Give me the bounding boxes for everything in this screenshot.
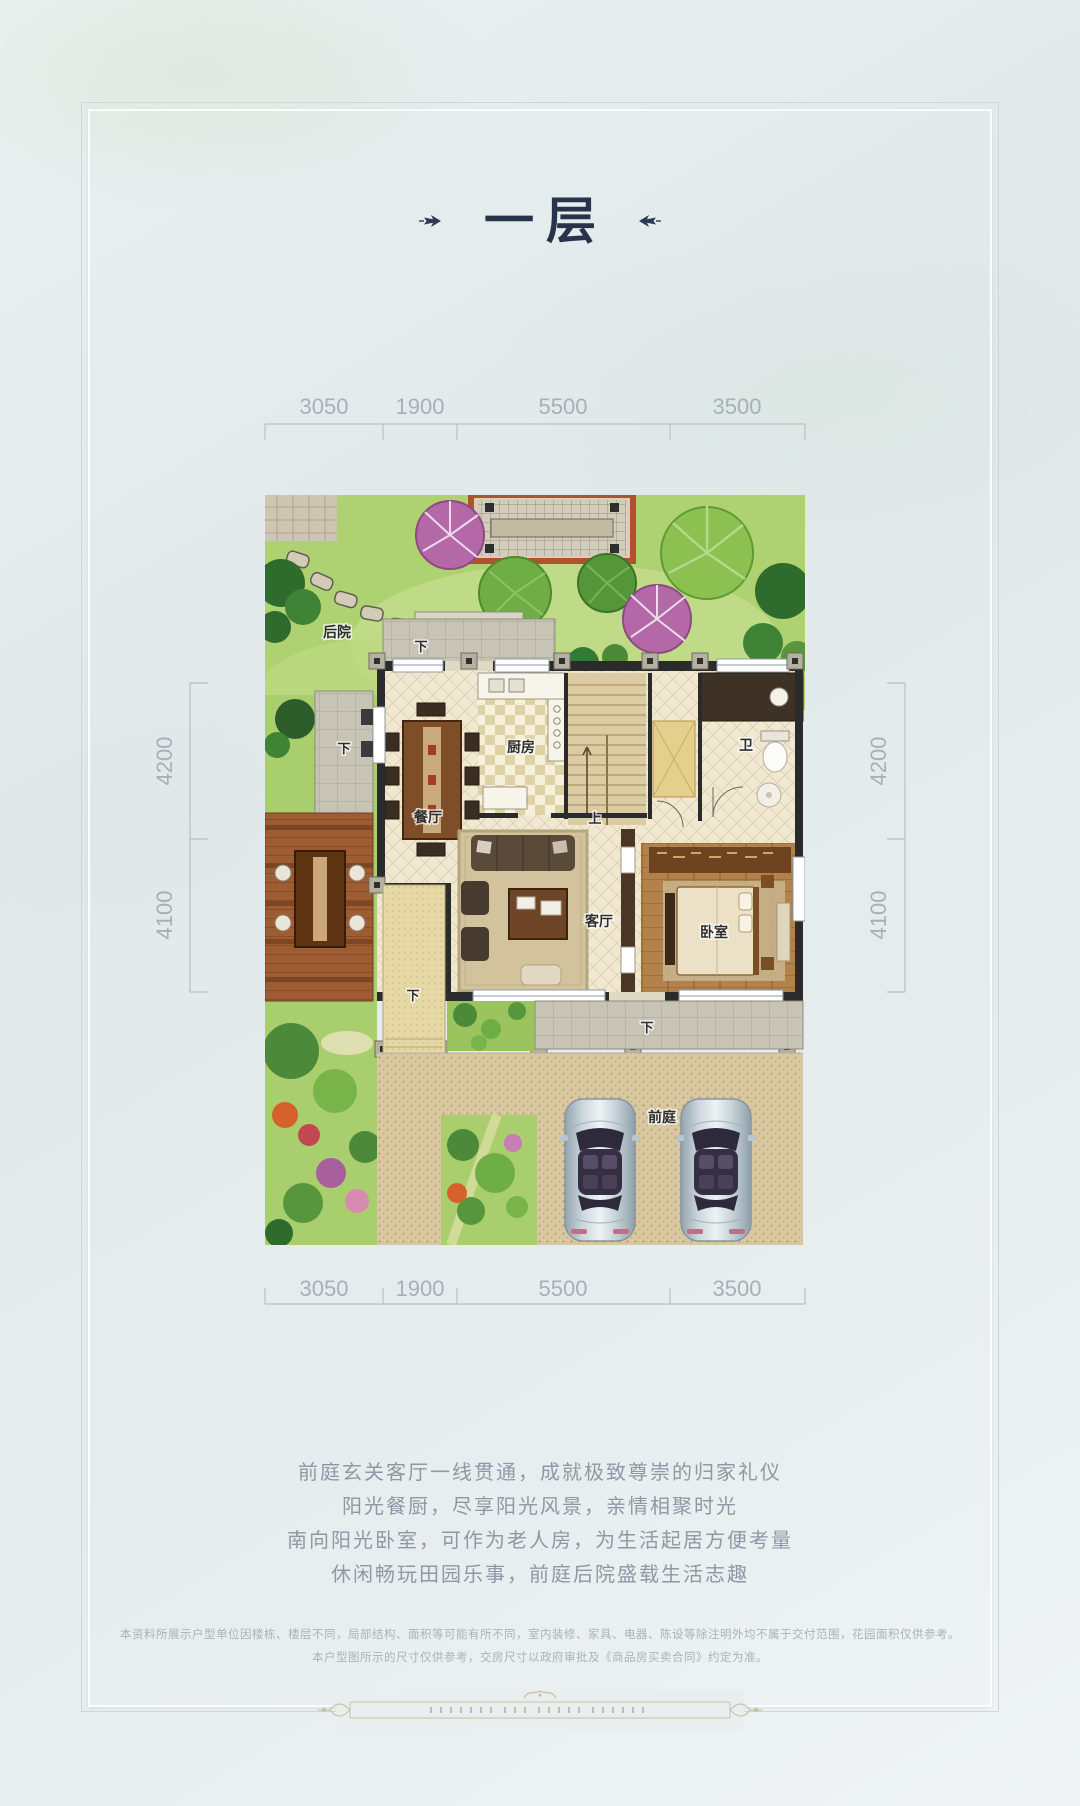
fleur-left-icon bbox=[418, 211, 442, 231]
svg-text:4100: 4100 bbox=[868, 891, 891, 940]
tree-purple-left bbox=[416, 501, 484, 569]
stairs bbox=[568, 673, 646, 825]
svg-text:5500: 5500 bbox=[539, 1276, 588, 1301]
room-label-backyard: 后院 bbox=[323, 624, 351, 640]
wood-deck bbox=[265, 813, 373, 1001]
pergola bbox=[471, 495, 633, 561]
tree-green-large bbox=[661, 505, 753, 599]
svg-text:3500: 3500 bbox=[713, 1276, 762, 1301]
svg-text:4200: 4200 bbox=[152, 737, 177, 786]
svg-text:5500: 5500 bbox=[539, 394, 588, 419]
svg-text:4100: 4100 bbox=[152, 891, 177, 940]
floorplan-poster: 一层 3050 1900 5500 3500 4200 4100 4200 41… bbox=[0, 0, 1080, 1806]
dimension-scale-right: 4200 4100 bbox=[868, 668, 932, 1014]
car-right bbox=[676, 1099, 756, 1241]
description-line: 休闲畅玩田园乐事，前庭后院盛载生活志趣 bbox=[0, 1558, 1080, 1592]
dimension-scale-top: 3050 1900 5500 3500 bbox=[220, 388, 860, 444]
description-line: 阳光餐厨，尽享阳光风景，亲情相聚时光 bbox=[0, 1490, 1080, 1524]
svg-text:3500: 3500 bbox=[713, 394, 762, 419]
step-label-side-patio: 下 bbox=[337, 741, 350, 756]
bottom-ornament-banner bbox=[310, 1686, 770, 1736]
svg-text:4200: 4200 bbox=[868, 737, 891, 786]
tree-purple-right bbox=[623, 585, 691, 653]
driveway bbox=[377, 1053, 803, 1245]
description-line: 南向阳光卧室，可作为老人房，为生活起居方便考量 bbox=[0, 1524, 1080, 1558]
step-label-porch: 下 bbox=[406, 988, 419, 1003]
step-label-terrace: 下 bbox=[640, 1020, 653, 1035]
dimension-scale-left: 4200 4100 bbox=[148, 668, 212, 1014]
disclaimer-block: 本资料所展示户型单位因楼栋、楼层不同，局部结构、面积等可能有所不同，室内装修、家… bbox=[0, 1624, 1080, 1670]
page-title: 一层 bbox=[472, 196, 608, 246]
living-room bbox=[459, 831, 587, 991]
stairs-label-up: 上 bbox=[588, 811, 601, 826]
room-label-kitchen: 厨房 bbox=[507, 739, 535, 755]
driveway-planter bbox=[441, 1115, 537, 1245]
disclaimer-line: 本资料所展示户型单位因楼栋、楼层不同，局部结构、面积等可能有所不同，室内装修、家… bbox=[0, 1624, 1080, 1647]
room-label-bedroom: 卧室 bbox=[700, 924, 728, 940]
entry-porch bbox=[383, 885, 445, 1053]
side-garden bbox=[265, 691, 381, 1245]
description-block: 前庭玄关客厅一线贯通，成就极致尊崇的归家礼仪 阳光餐厨，尽享阳光风景，亲情相聚时… bbox=[0, 1456, 1080, 1592]
svg-text:1900: 1900 bbox=[396, 394, 445, 419]
description-line: 前庭玄关客厅一线贯通，成就极致尊崇的归家礼仪 bbox=[0, 1456, 1080, 1490]
room-label-living: 客厅 bbox=[584, 913, 613, 929]
dimension-scale-bottom: 3050 1900 5500 3500 bbox=[220, 1270, 860, 1316]
bedroom bbox=[641, 843, 799, 995]
disclaimer-line: 本户型图所示的尺寸仅供参考，交房尺寸以政府审批及《商品房买卖合同》约定为准。 bbox=[0, 1647, 1080, 1670]
svg-text:3050: 3050 bbox=[300, 394, 349, 419]
floorplan-illustration: 后院 下 下 餐厅 厨房 卫 上 客厅 卧室 下 下 前庭 bbox=[265, 495, 805, 1245]
step-label-rear-deck: 下 bbox=[414, 639, 427, 654]
svg-text:3050: 3050 bbox=[300, 1276, 349, 1301]
front-terrace bbox=[535, 1001, 803, 1049]
room-label-front-yard: 前庭 bbox=[648, 1109, 677, 1125]
car-left bbox=[560, 1099, 640, 1241]
room-label-bathroom: 卫 bbox=[739, 737, 753, 753]
fleur-right-icon bbox=[638, 211, 662, 231]
svg-text:1900: 1900 bbox=[396, 1276, 445, 1301]
front-planting-strip bbox=[447, 1001, 535, 1051]
room-label-dining: 餐厅 bbox=[413, 809, 442, 825]
page-title-row: 一层 bbox=[0, 196, 1080, 246]
